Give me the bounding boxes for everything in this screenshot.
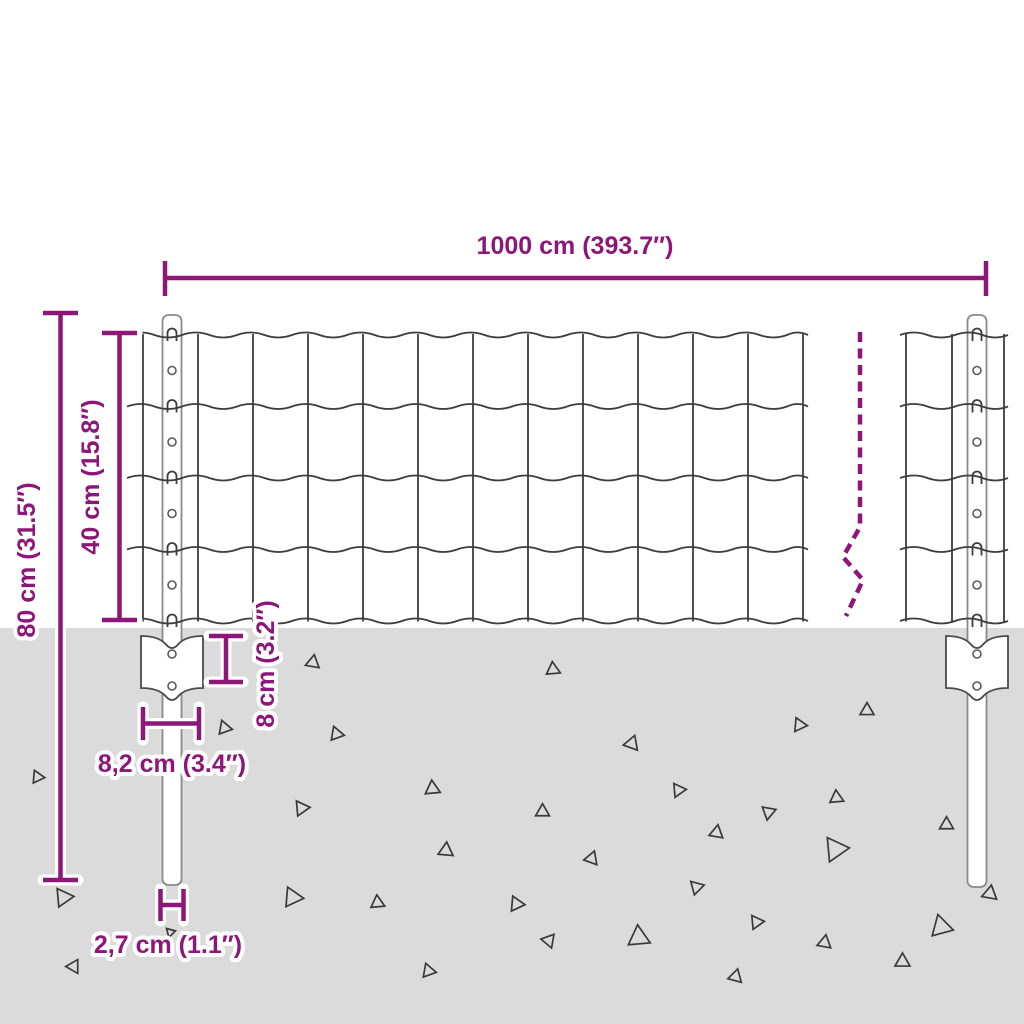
dimension-mesh-height: 40 cm (15.8″) <box>77 333 137 620</box>
diagram-scene: 1000 cm (393.7″) 80 cm (31.5″) 40 cm (15… <box>0 0 1024 1024</box>
post-hole <box>973 650 981 658</box>
post-diameter-label: 2,7 cm (1.1″) <box>94 931 242 959</box>
anchor-depth-label: 8 cm (3.2″) <box>252 600 280 727</box>
post-hole <box>973 682 981 690</box>
mesh-wire-horizontal <box>127 476 808 481</box>
post-hole <box>168 581 176 589</box>
mesh-wire-horizontal <box>127 547 808 552</box>
mesh-vertical-wires <box>143 334 1004 622</box>
post-hole <box>168 367 176 375</box>
post-hole <box>973 367 981 375</box>
post-height-label: 80 cm (31.5″) <box>13 482 41 637</box>
mesh-wire-horizontal <box>900 476 1008 481</box>
mesh-wire-horizontal <box>127 619 808 624</box>
post-hole <box>973 438 981 446</box>
anchor-width-label: 8,2 cm (3.4″) <box>98 750 246 778</box>
post-hole <box>168 438 176 446</box>
mesh-horizontal-wires <box>127 333 1008 624</box>
mesh-height-label: 40 cm (15.8″) <box>77 399 105 554</box>
post-hole <box>973 510 981 518</box>
mesh-wire-horizontal <box>127 333 808 338</box>
post-hole <box>168 682 176 690</box>
post-hole <box>973 581 981 589</box>
mesh-wire-horizontal <box>900 619 1008 624</box>
mesh-wire-horizontal <box>127 404 808 409</box>
dimension-total-width: 1000 cm (393.7″) <box>165 232 986 296</box>
post-hole <box>168 510 176 518</box>
total-width-label: 1000 cm (393.7″) <box>477 232 674 260</box>
mesh-wire-horizontal <box>900 333 1008 338</box>
mesh-wire-horizontal <box>900 404 1008 409</box>
fence-dimension-diagram: 1000 cm (393.7″) 80 cm (31.5″) 40 cm (15… <box>0 0 1024 1024</box>
break-line <box>843 332 863 616</box>
mesh-wire-horizontal <box>900 547 1008 552</box>
post-hole <box>168 650 176 658</box>
